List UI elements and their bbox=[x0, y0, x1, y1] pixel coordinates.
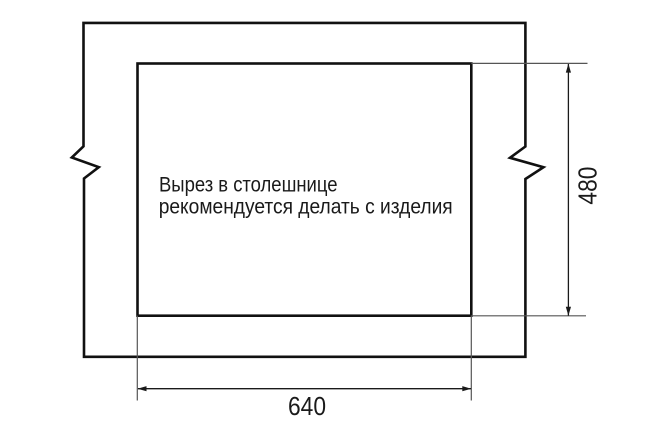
svg-text:640: 640 bbox=[288, 393, 326, 421]
svg-text:Вырез в столешнице: Вырез в столешнице bbox=[159, 173, 338, 196]
svg-text:480: 480 bbox=[575, 167, 603, 205]
svg-text:рекомендуется делать с изделия: рекомендуется делать с изделия bbox=[159, 196, 453, 219]
